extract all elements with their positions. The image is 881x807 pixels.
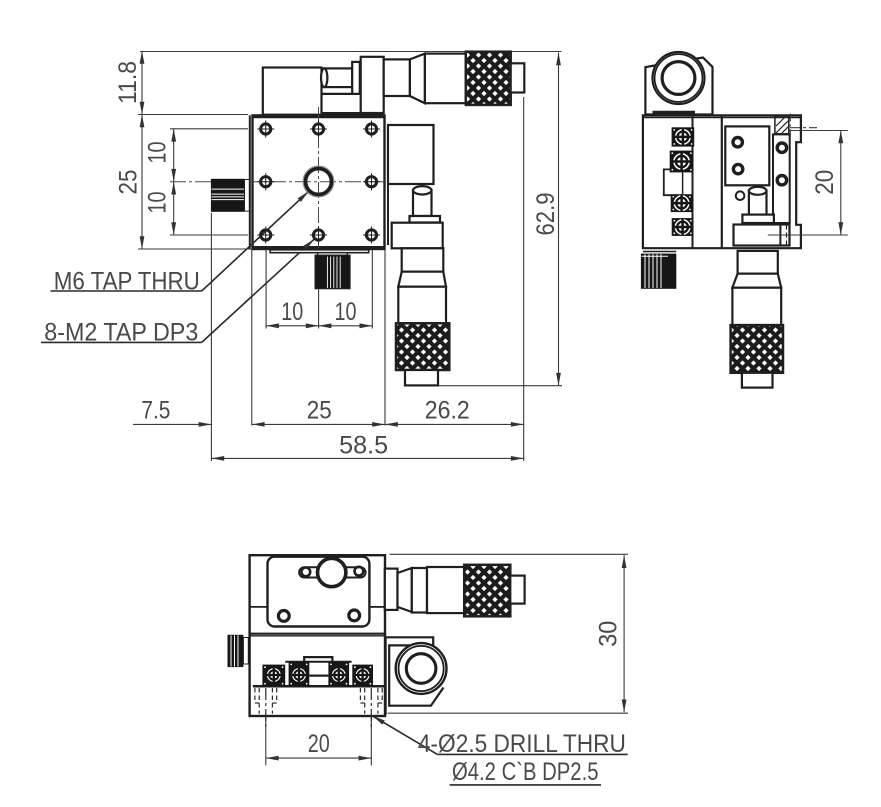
svg-text:25: 25 [115,170,143,195]
svg-text:62.9: 62.9 [532,193,560,236]
svg-text:10: 10 [143,142,171,164]
svg-text:30: 30 [594,621,622,647]
svg-text:11.8: 11.8 [114,61,142,104]
svg-text:7.5: 7.5 [141,397,170,425]
svg-text:10: 10 [281,298,303,326]
svg-text:26.2: 26.2 [425,397,470,425]
svg-text:4-Ø2.5 DRILL THRU: 4-Ø2.5 DRILL THRU [418,730,626,758]
svg-text:20: 20 [811,170,839,195]
svg-text:20: 20 [308,730,330,758]
svg-text:10: 10 [335,298,357,326]
svg-text:58.5: 58.5 [339,432,388,460]
svg-text:Ø4.2 C`B DP2.5: Ø4.2 C`B DP2.5 [452,758,599,786]
svg-text:25: 25 [307,397,332,425]
svg-text:10: 10 [143,192,171,214]
